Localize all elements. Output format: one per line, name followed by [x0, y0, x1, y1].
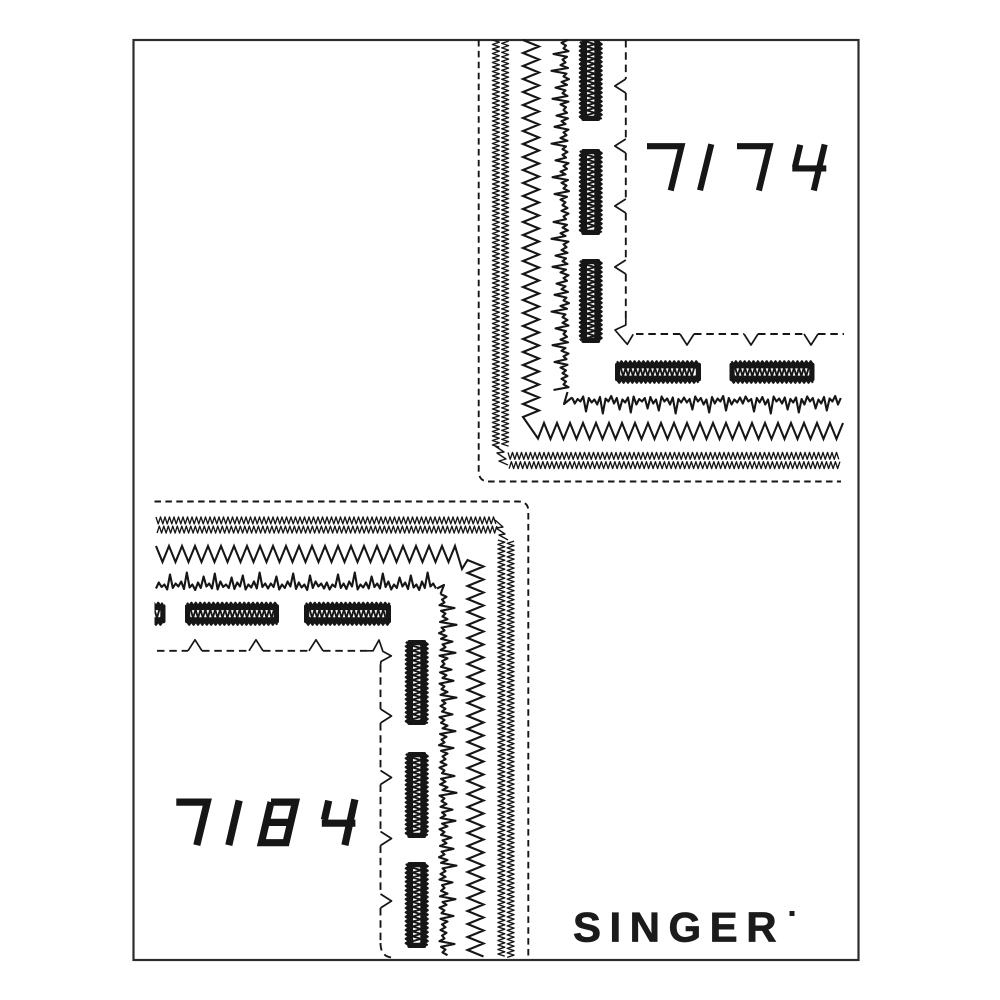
svg-text:SINGER: SINGER — [573, 904, 785, 951]
